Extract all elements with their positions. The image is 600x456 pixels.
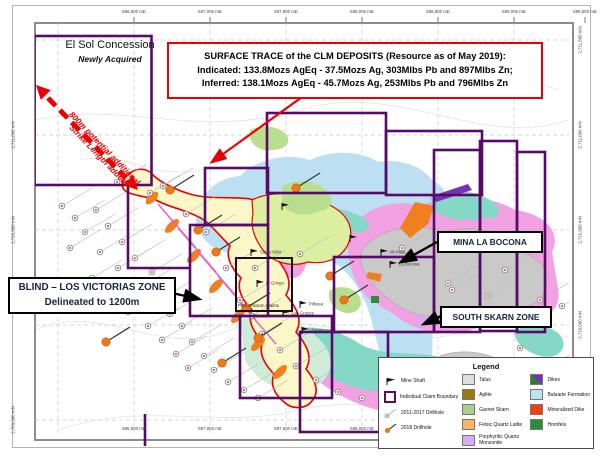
- easting-label: 589,500 mE: [573, 9, 597, 14]
- drillhole-collar-dot: [225, 267, 227, 269]
- drillhole-collar-dot: [227, 381, 229, 383]
- puro-corazon-label: Puro Corazon Claims: [238, 303, 279, 308]
- legend: Legend Mine Shaft Individual Claim Bound…: [378, 357, 594, 449]
- drillhole-trace: [163, 168, 193, 186]
- northing-label: 2,710,000 mN: [578, 311, 583, 339]
- easting-label: 586,500 mE: [122, 426, 146, 431]
- drillhole-collar-dot: [361, 397, 363, 399]
- aplite-swatch: [462, 389, 475, 400]
- drillhole-2018-collar: [102, 338, 110, 346]
- northing-label: 2,710,500 mN: [578, 216, 583, 244]
- drillhole-collar-dot: [74, 217, 76, 219]
- easting-label: 586,500 mE: [122, 9, 146, 14]
- legend-marker-column: Mine Shaft Individual Claim Boundary 201…: [384, 374, 462, 446]
- easting-label: 587,000 mE: [198, 426, 222, 431]
- drillhole-collar-dot: [107, 225, 109, 227]
- drillhole-trace: [75, 200, 105, 218]
- legend-units-column-1: Talus Aplite Garnet Skarn Felsic Quartz …: [462, 374, 530, 446]
- easting-label: 587,500 mE: [274, 9, 298, 14]
- resource-box-leader-arrow: [212, 97, 302, 162]
- drillhole-collar-dot: [121, 241, 123, 243]
- drillhole-trace: [96, 192, 126, 210]
- drillhole-collar-dot: [162, 185, 164, 187]
- easting-label: 587,000 mE: [198, 9, 222, 14]
- drillhole-collar-dot: [181, 325, 183, 327]
- legend-item-claim-boundary: Individual Claim Boundary: [384, 391, 462, 403]
- drillhole-collar-dot: [69, 247, 71, 249]
- drillhole-2018-collar: [194, 226, 202, 234]
- drillhole-collar-dot: [447, 282, 449, 284]
- drillhole-collar-dot: [254, 267, 256, 269]
- drillhole-trace: [118, 250, 148, 268]
- talus-swatch: [462, 374, 475, 385]
- northing-label: 2,711,000 mN: [578, 121, 583, 148]
- hornfels-swatch: [530, 419, 543, 430]
- legend-title: Legend: [379, 362, 593, 371]
- drillhole-collar-dot: [295, 365, 297, 367]
- geology-map-figure: Puro Corazon Claims Mi PlataLa BoconaSan…: [0, 0, 600, 456]
- mine-shaft-label: Santo Niño: [260, 250, 282, 255]
- drillhole-2018-collar: [212, 248, 220, 256]
- mine-shaft-label: Mi Plata: [390, 250, 406, 255]
- drillhole-trace: [108, 208, 138, 226]
- mina-la-bocona-label: MINA LA BOCONA: [437, 231, 543, 253]
- felsic-quartz-latite-swatch: [462, 419, 475, 430]
- drillhole-collar-dot: [539, 299, 541, 301]
- drillhole-collar-dot: [487, 295, 489, 297]
- mine-shaft-label: Zacatecas: [311, 328, 331, 333]
- drillhole-trace: [85, 214, 115, 232]
- drillhole-collar-dot: [99, 251, 101, 253]
- easting-label: 588,000 mE: [350, 426, 374, 431]
- mine-shaft-label: Las Cruces: [292, 311, 314, 316]
- drillhole-collar-dot: [203, 355, 205, 357]
- drillhole-collar-dot: [185, 213, 187, 215]
- drillhole-collar-dot: [205, 231, 207, 233]
- northing-label: 2,711,000 mN: [11, 121, 16, 148]
- drillhole-trace: [204, 338, 234, 356]
- easting-label: 589,000 mE: [502, 9, 526, 14]
- drillhole-collar-dot: [239, 299, 241, 301]
- drillhole-trace: [122, 224, 152, 242]
- garnet-skarn-swatch: [462, 404, 475, 415]
- drillhole-collar-dot: [191, 341, 193, 343]
- baluarte-formation-swatch: [530, 389, 543, 400]
- drillhole-2011-2017-icon: [384, 408, 397, 418]
- drillhole-trace: [62, 188, 92, 206]
- legend-item-old-drillhole: 2011-2017 Drillhole: [384, 408, 462, 418]
- drillhole-trace: [188, 350, 218, 368]
- drillhole-2018-collar: [218, 359, 226, 367]
- drillhole-collar-dot: [213, 369, 215, 371]
- drillhole-trace: [192, 324, 222, 342]
- mine-shaft-icon: [384, 376, 397, 386]
- drillhole-trace: [228, 364, 258, 382]
- drillhole-collar-dot: [504, 269, 506, 271]
- drillhole-collar-dot: [147, 325, 149, 327]
- drillhole-collar-dot: [84, 231, 86, 233]
- easting-label: 588,500 mE: [426, 9, 450, 14]
- drillhole-2018-collar: [292, 184, 300, 192]
- drillhole-collar-dot: [337, 391, 339, 393]
- legend-item-2018-drillhole: 2018 Drillhole: [384, 423, 462, 433]
- mine-shaft-flag-icon: [300, 301, 307, 305]
- drillhole-collar-dot: [299, 253, 301, 255]
- drillhole-2018-collar: [166, 186, 174, 194]
- drillhole-collar-dot: [187, 367, 189, 369]
- drillhole-2018-collar: [340, 296, 348, 304]
- legend-units-column-2: Dikes Baluarte Formation Mineralized Dik…: [530, 374, 591, 446]
- easting-label: 587,500 mE: [274, 426, 298, 431]
- mineralized-dike-swatch: [530, 404, 543, 415]
- drillhole-collar-dot: [243, 389, 245, 391]
- dikes-swatch: [530, 374, 543, 385]
- drillhole-collar-dot: [279, 349, 281, 351]
- drillhole-collar-dot: [95, 209, 97, 211]
- drillhole-collar-dot: [151, 271, 153, 273]
- blind-los-victorias-label: BLIND – LOS VICTORIAS ZONE Delineated to…: [8, 277, 176, 314]
- south-skarn-zone-label: SOUTH SKARN ZONE: [440, 306, 552, 328]
- porphyritic-quartz-monzonite-swatch: [462, 435, 475, 446]
- northing-label: 2,709,500 mN: [11, 406, 16, 434]
- el-sol-concession-label: El Sol Concession: [50, 39, 170, 51]
- drillhole-collar-dot: [451, 289, 453, 291]
- drillhole-2018-collar: [254, 334, 262, 342]
- northing-label: 2,711,500 mN: [578, 26, 583, 53]
- hornfels-area: [371, 296, 379, 303]
- drillhole-collar-dot: [315, 379, 317, 381]
- axis-ticks: [134, 17, 585, 23]
- mine-shaft-label: Pilhasa: [309, 302, 324, 307]
- easting-label: 588,000 mE: [350, 9, 374, 14]
- drillhole-collar-dot: [519, 347, 521, 349]
- drillhole-collar-dot: [175, 353, 177, 355]
- drillhole-collar-dot: [61, 205, 63, 207]
- claim-boundary-icon: [384, 391, 396, 403]
- drillhole-2018-icon: [384, 423, 397, 433]
- drillhole-trace: [562, 288, 592, 306]
- el-sol-newly-acquired-label: Newly Acquired: [50, 54, 170, 64]
- northing-label: 2,710,500 mN: [11, 216, 16, 244]
- drillhole-collar-dot: [161, 339, 163, 341]
- drillhole-collar-dot: [117, 267, 119, 269]
- drillhole-trace: [100, 234, 130, 252]
- mine-shaft-label: El Gringo: [266, 281, 285, 286]
- legend-item-mine-shaft: Mine Shaft: [384, 376, 462, 386]
- drillhole-collar-dot: [561, 305, 563, 307]
- resource-statement-box: SURFACE TRACE of the CLM DEPOSITS (Resou…: [167, 42, 543, 99]
